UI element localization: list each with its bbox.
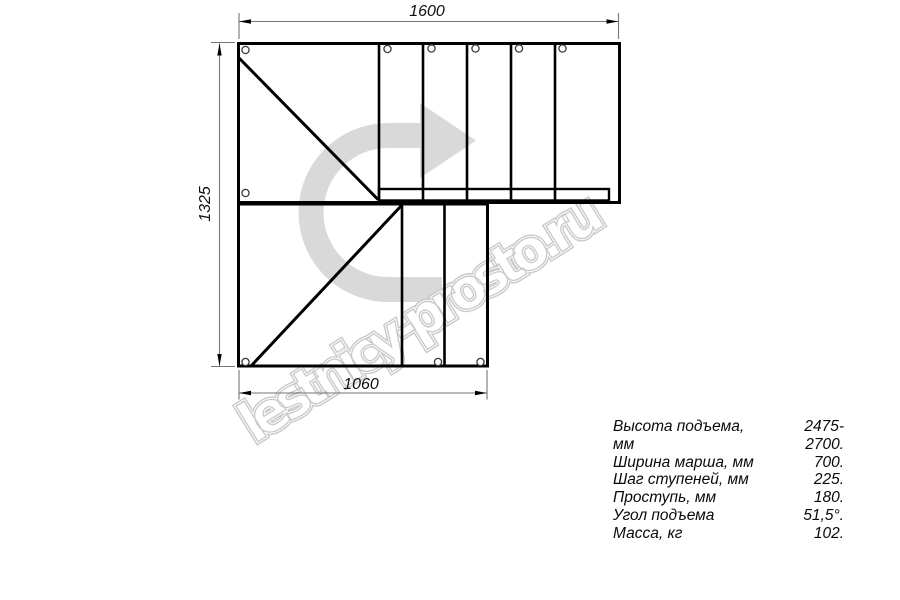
spec-label: Ширина марша, мм [613,454,754,472]
upper-flight-outline [239,44,620,203]
lower-flight-step-lines [402,205,445,365]
stair-plan-drawing: lestnicy-prosto.ru lestnicy-prosto.ru le… [0,0,900,600]
dimension-left-label: 1325 [197,186,215,222]
upper-flight-step-lines [379,44,555,202]
spec-label: Высота подъема, мм [613,418,767,454]
spec-row: Масса, кг 102. [613,525,844,543]
spec-table: Высота подъема, мм 2475-2700. Ширина мар… [613,418,844,542]
spec-row: Угол подъема 51,5°. [613,507,844,525]
spec-value: 2475-2700. [767,418,844,454]
dimension-bottom-label: 1060 [343,376,379,394]
spec-value: 225. [814,471,844,489]
spec-row: Высота подъема, мм 2475-2700. [613,418,844,454]
spec-value: 51,5°. [803,507,844,525]
spec-value: 102. [814,525,844,543]
spec-row: Шаг ступеней, мм 225. [613,471,844,489]
lower-flight-diagonal [252,206,402,366]
spec-value: 700. [814,454,844,472]
upper-flight-stringer [379,189,609,201]
stair-outline [239,44,620,367]
spec-label: Шаг ступеней, мм [613,471,749,489]
spec-label: Угол подъема [613,507,714,525]
spec-label: Масса, кг [613,525,682,543]
spec-row: Проступь, мм 180. [613,489,844,507]
spec-value: 180. [814,489,844,507]
dimension-top-label: 1600 [409,3,445,21]
spec-row: Ширина марша, мм 700. [613,454,844,472]
upper-landing-diagonal [239,58,379,200]
spec-label: Проступь, мм [613,489,716,507]
